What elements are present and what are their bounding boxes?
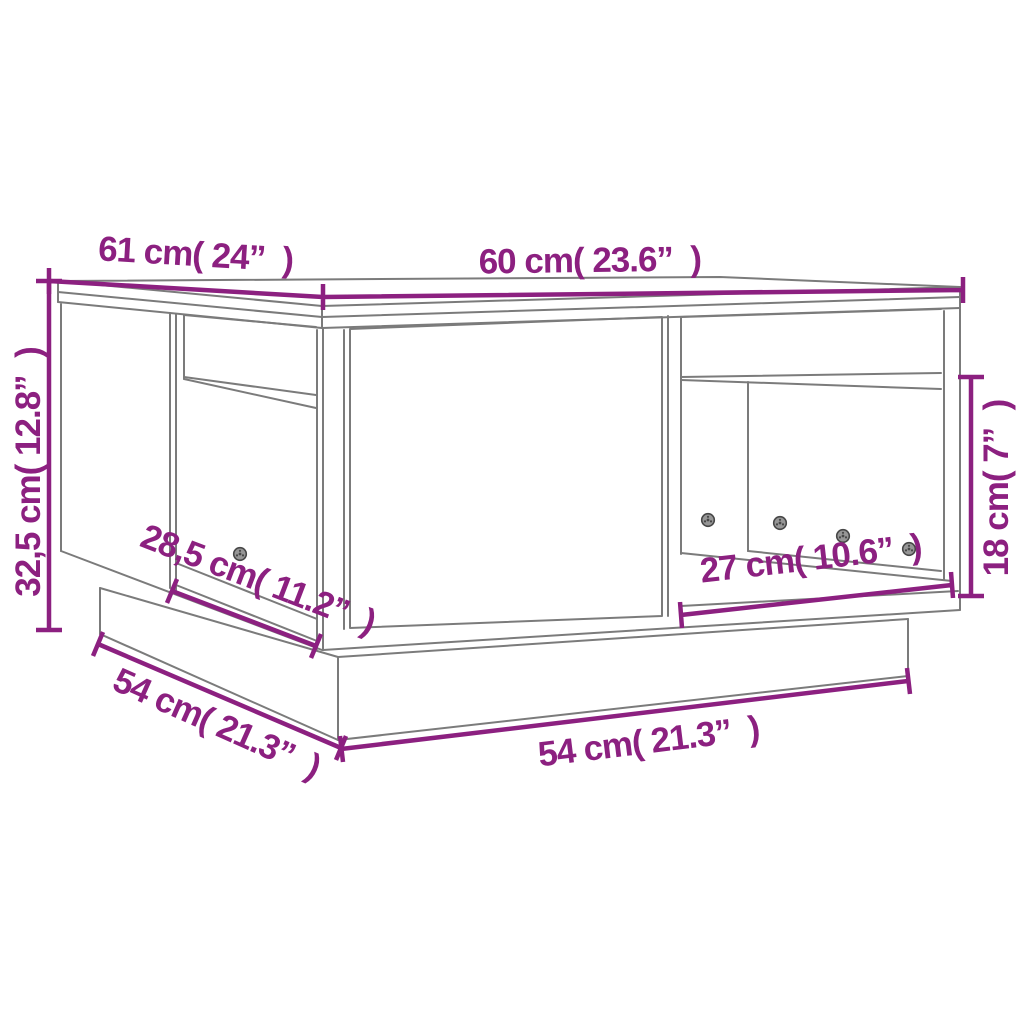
right-rail-top-edge (681, 309, 941, 317)
dimension-label-27cm: 27 cm( 10.6” ) (698, 527, 923, 591)
left-rail-bottom-edge (184, 377, 316, 395)
table-drawing (58, 277, 960, 740)
right-backpanel-top-edge (681, 380, 941, 389)
screw-icon (702, 514, 715, 527)
dimension-label-54cm-depth: 54 cm( 21.3” ) (107, 660, 326, 786)
tabletop (58, 277, 960, 328)
dimension-label-60cm: 60 cm( 23.6” ) (478, 239, 701, 281)
dimension-label-32-5cm: 32,5 cm( 12.8” ) (9, 347, 48, 597)
furniture-dimension-diagram: 61 cm( 24” ) 60 cm( 23.6” ) 32,5 cm( 12.… (0, 0, 1024, 1024)
screw-icon (774, 517, 787, 530)
door-panel (350, 317, 662, 628)
front-face (323, 309, 960, 650)
left-backpanel-top-edge (184, 379, 316, 408)
dimension-label-61cm: 61 cm( 24” ) (97, 229, 294, 280)
dimension-label-54cm-width: 54 cm( 21.3” ) (536, 709, 761, 775)
diagram-canvas: 61 cm( 24” ) 60 cm( 23.6” ) 32,5 cm( 12.… (0, 0, 1024, 1024)
right-rail-bottom-edge (681, 373, 941, 377)
left-rail-top-edge (184, 315, 316, 327)
dimension-label-18cm: 18 cm( 7” ) (977, 400, 1016, 577)
